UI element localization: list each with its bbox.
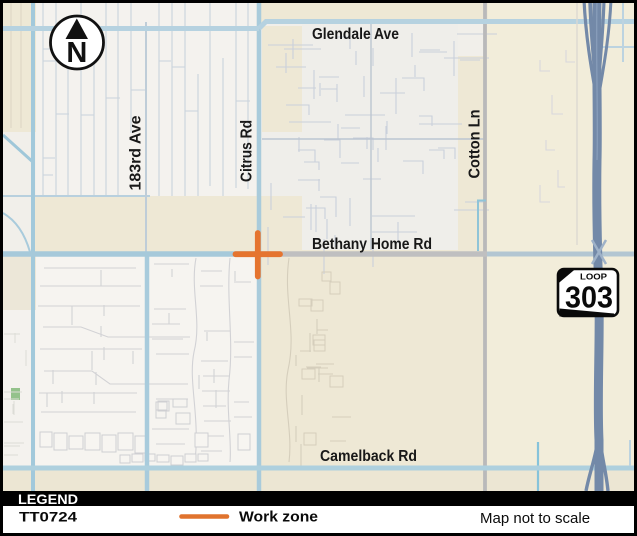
svg-text:Work zone: Work zone bbox=[239, 510, 318, 526]
svg-text:Bethany Home Rd: Bethany Home Rd bbox=[312, 236, 432, 253]
svg-text:Camelback Rd: Camelback Rd bbox=[320, 448, 417, 465]
svg-text:LEGEND: LEGEND bbox=[18, 491, 78, 507]
svg-text:N: N bbox=[66, 37, 87, 69]
svg-text:TT0724: TT0724 bbox=[19, 509, 77, 525]
svg-text:Cotton Ln: Cotton Ln bbox=[467, 110, 484, 179]
svg-text:Glendale Ave: Glendale Ave bbox=[312, 26, 399, 43]
svg-text:183rd Ave: 183rd Ave bbox=[128, 115, 145, 190]
svg-text:303: 303 bbox=[565, 280, 613, 315]
svg-text:Map not to scale: Map not to scale bbox=[480, 510, 590, 527]
svg-text:Citrus Rd: Citrus Rd bbox=[239, 120, 256, 182]
